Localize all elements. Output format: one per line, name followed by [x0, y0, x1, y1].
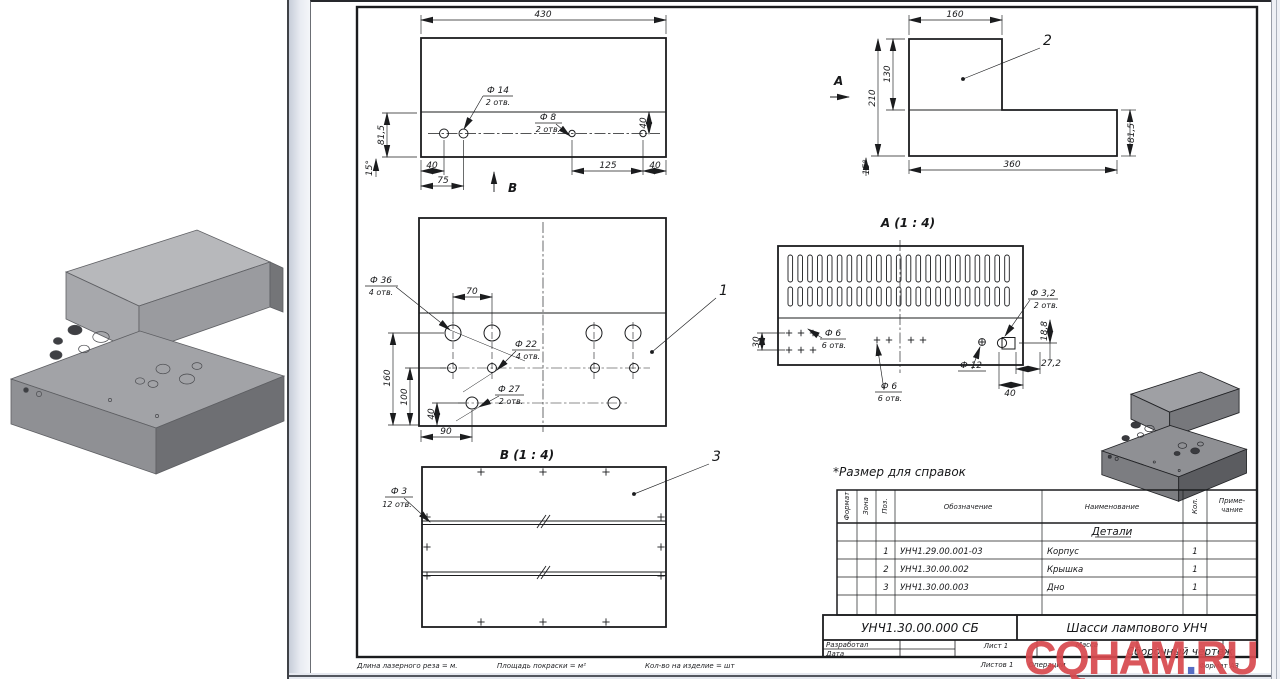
page-left-gutter [289, 0, 310, 679]
watermark-dot: . [1185, 631, 1196, 679]
drawing-sheet [310, 0, 1272, 675]
watermark-part2: RU [1195, 631, 1256, 679]
watermark-part1: CQHAM [1024, 631, 1185, 679]
3d-preview-panel [0, 0, 288, 679]
cqham-watermark: CQHAM.RU [1024, 630, 1274, 679]
screenshot-root: 430 81,5 15° 40 75 125 40 40 Ф 14 2 отв.… [0, 0, 1280, 679]
page-right-edge-line [1276, 0, 1277, 679]
